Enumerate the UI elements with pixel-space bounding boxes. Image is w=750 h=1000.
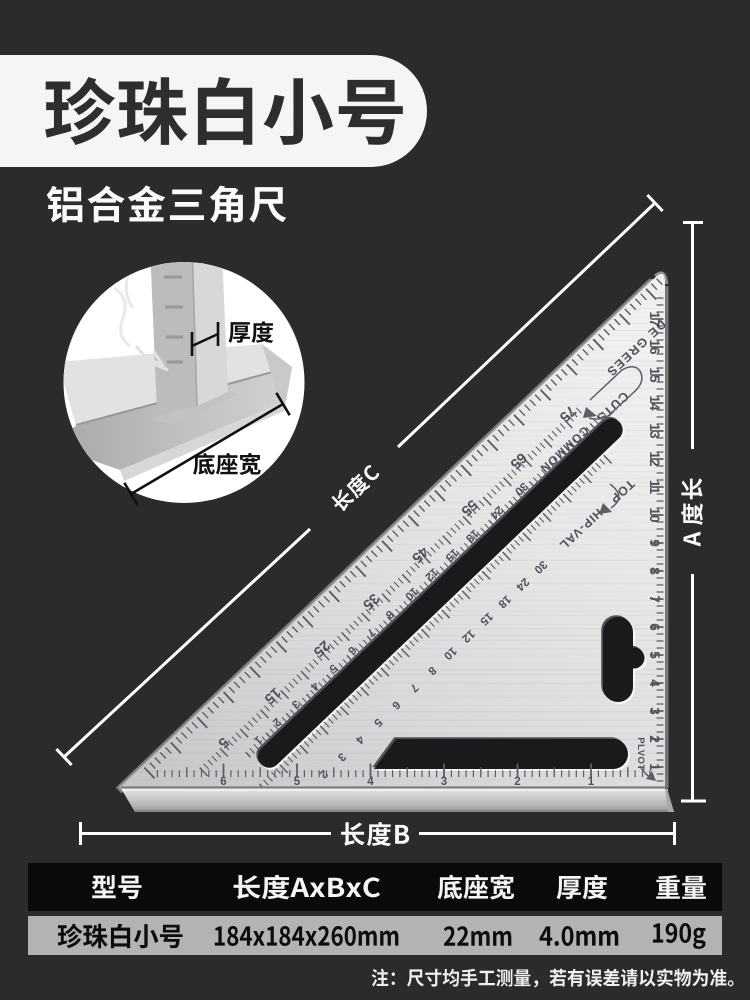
svg-text:13: 13 <box>647 423 662 439</box>
svg-text:14: 14 <box>647 395 662 411</box>
svg-text:8: 8 <box>647 567 662 575</box>
svg-text:3: 3 <box>647 707 662 715</box>
svg-text:6: 6 <box>220 776 226 788</box>
svg-text:9: 9 <box>647 539 662 547</box>
svg-text:6: 6 <box>647 623 662 631</box>
svg-text:1: 1 <box>647 763 662 771</box>
svg-text:2: 2 <box>514 776 520 788</box>
svg-text:12: 12 <box>647 451 662 466</box>
svg-text:10: 10 <box>647 507 662 522</box>
svg-text:2: 2 <box>647 735 662 743</box>
svg-text:3: 3 <box>441 776 447 788</box>
svg-text:5: 5 <box>294 776 301 788</box>
svg-text:1: 1 <box>588 776 595 788</box>
svg-text:15: 15 <box>647 367 662 383</box>
svg-text:7: 7 <box>647 595 662 603</box>
svg-text:5: 5 <box>647 651 662 659</box>
svg-text:11: 11 <box>647 480 662 495</box>
svg-text:4: 4 <box>647 679 662 687</box>
svg-text:4: 4 <box>367 776 374 788</box>
